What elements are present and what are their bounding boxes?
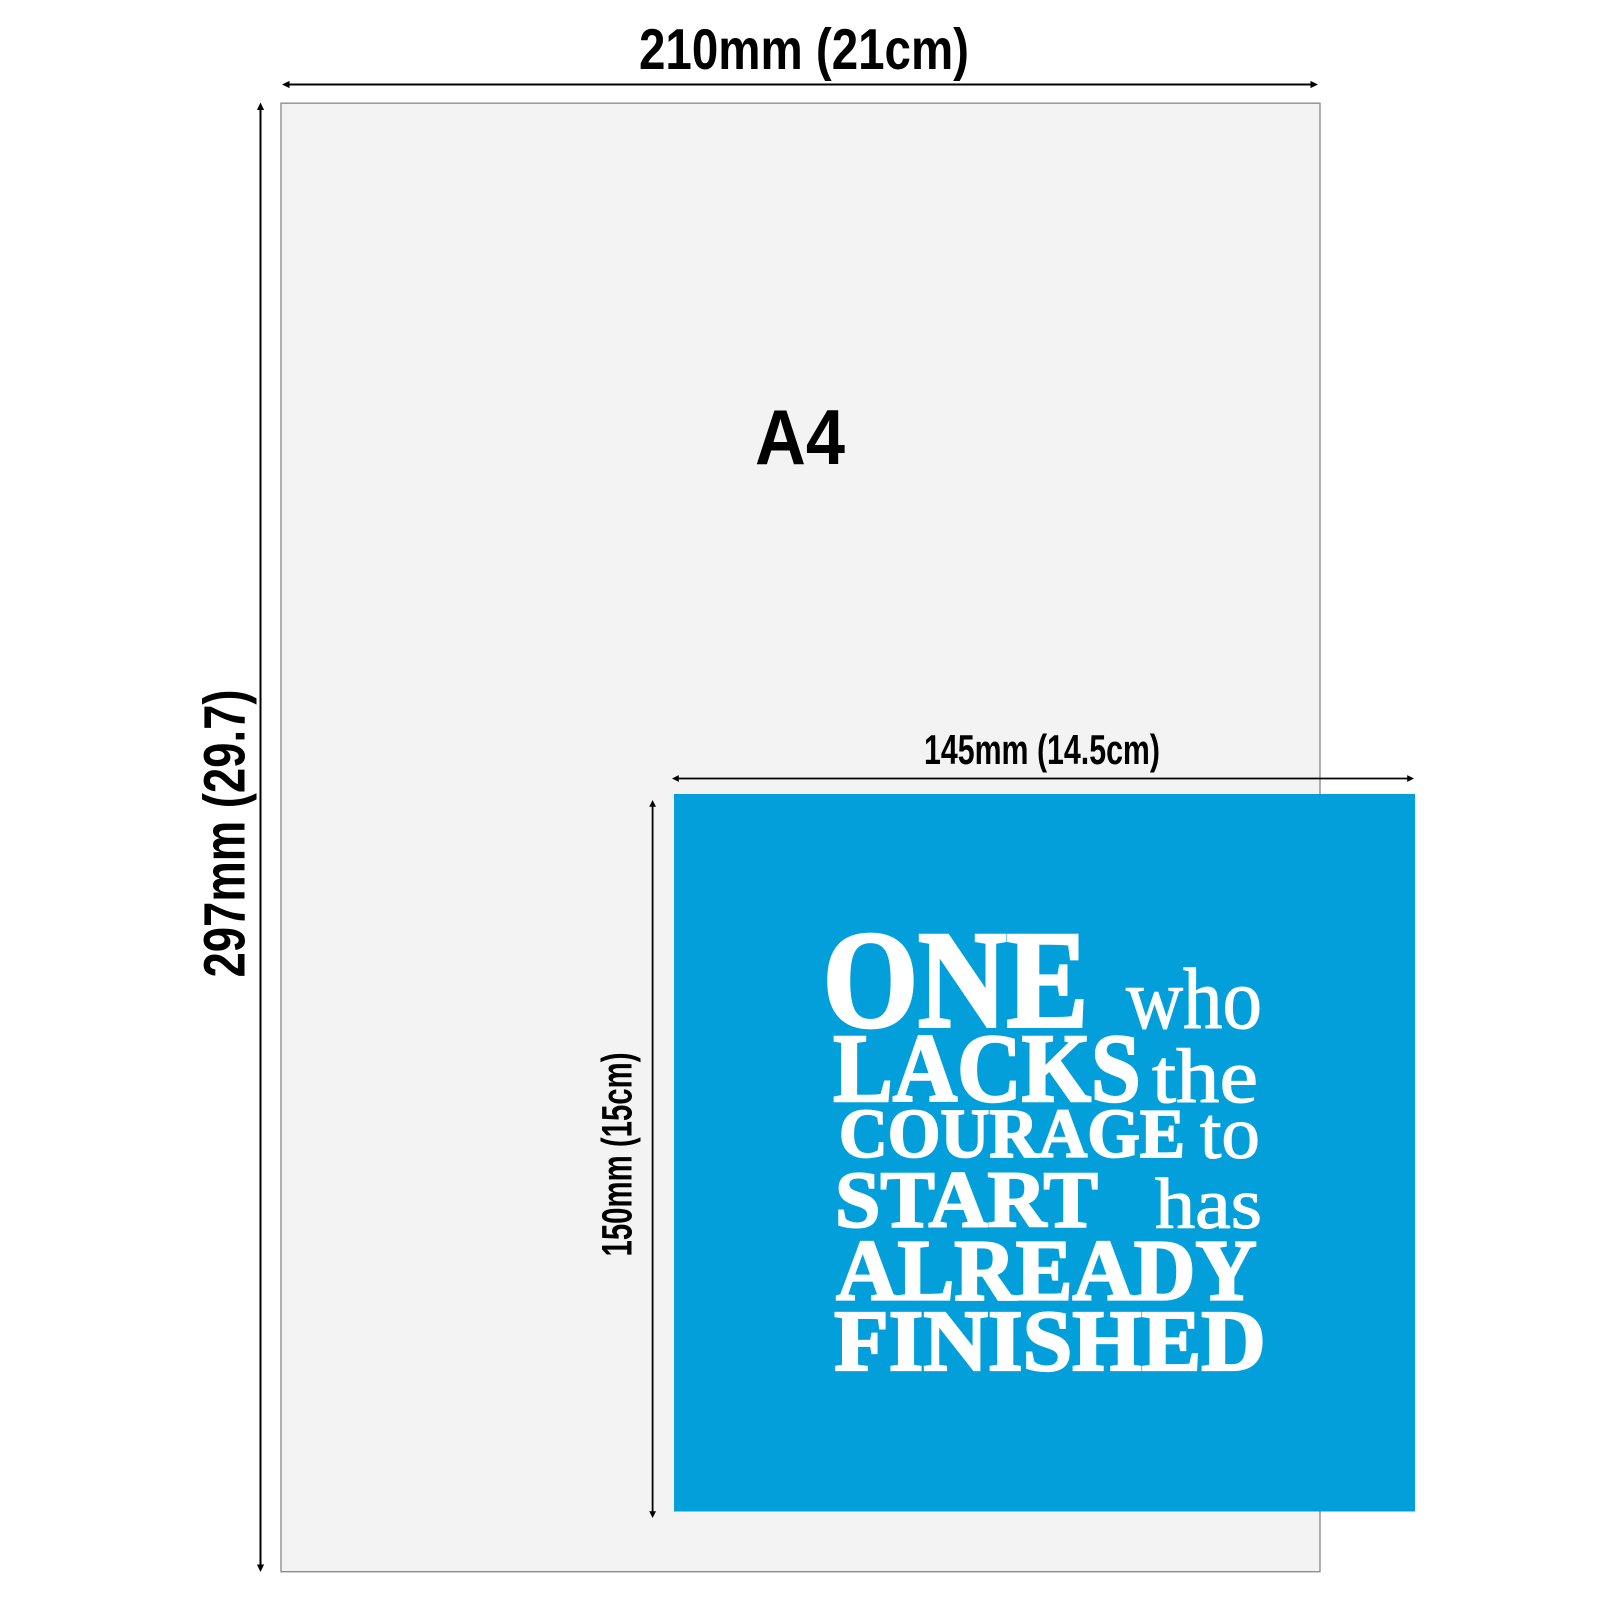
- svg-text:210mm (21cm): 210mm (21cm): [639, 18, 969, 82]
- svg-text:who: who: [1126, 950, 1262, 1047]
- svg-text:150mm (15cm): 150mm (15cm): [594, 1053, 642, 1257]
- svg-text:145mm (14.5cm): 145mm (14.5cm): [924, 726, 1160, 773]
- svg-text:to: to: [1200, 1092, 1260, 1174]
- svg-text:A4: A4: [755, 393, 845, 481]
- svg-text:297mm (29.7): 297mm (29.7): [192, 690, 257, 978]
- svg-text:FINISHED: FINISHED: [834, 1292, 1266, 1389]
